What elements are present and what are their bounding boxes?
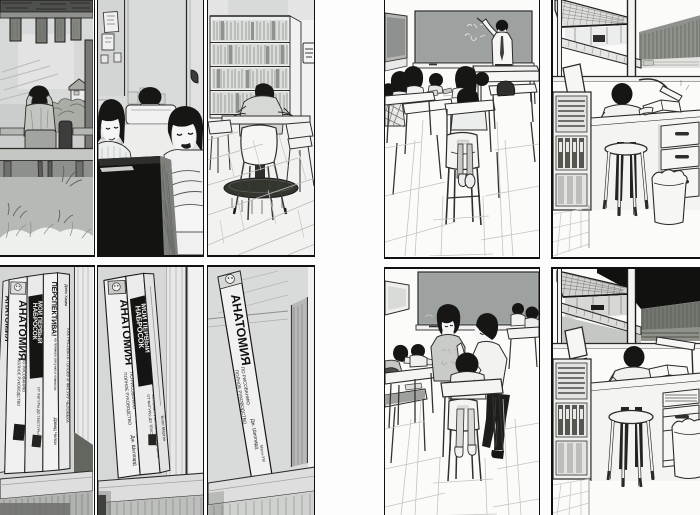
svg-text:НАБРОСОК: НАБРОСОК: [31, 303, 38, 340]
svg-text:на примере рисунка в комиксах: на примере рисунка в комиксах: [53, 338, 57, 391]
svg-text:ПЕРСПЕКТИВА!: ПЕРСПЕКТИВА!: [50, 282, 57, 337]
svg-text:КАК РИСОВАТЬ ГОЛОВУ И ФИГУРУ Ч: КАК РИСОВАТЬ ГОЛОВУ И ФИГУРУ ЧЕЛОВЕКА: [65, 328, 71, 423]
svg-text:ОТ ФИГУРЫ ДО ТЕКСТУРЫ: ОТ ФИГУРЫ ДО ТЕКСТУРЫ: [36, 387, 40, 435]
svg-text:Джек Хамм: Джек Хамм: [64, 284, 69, 306]
svg-text:Дэвид Челси: Дэвид Челси: [53, 418, 58, 445]
svg-text:ПОЛНОЕ РУКОВОДСТВО: ПОЛНОЕ РУКОВОДСТВО: [16, 358, 21, 406]
